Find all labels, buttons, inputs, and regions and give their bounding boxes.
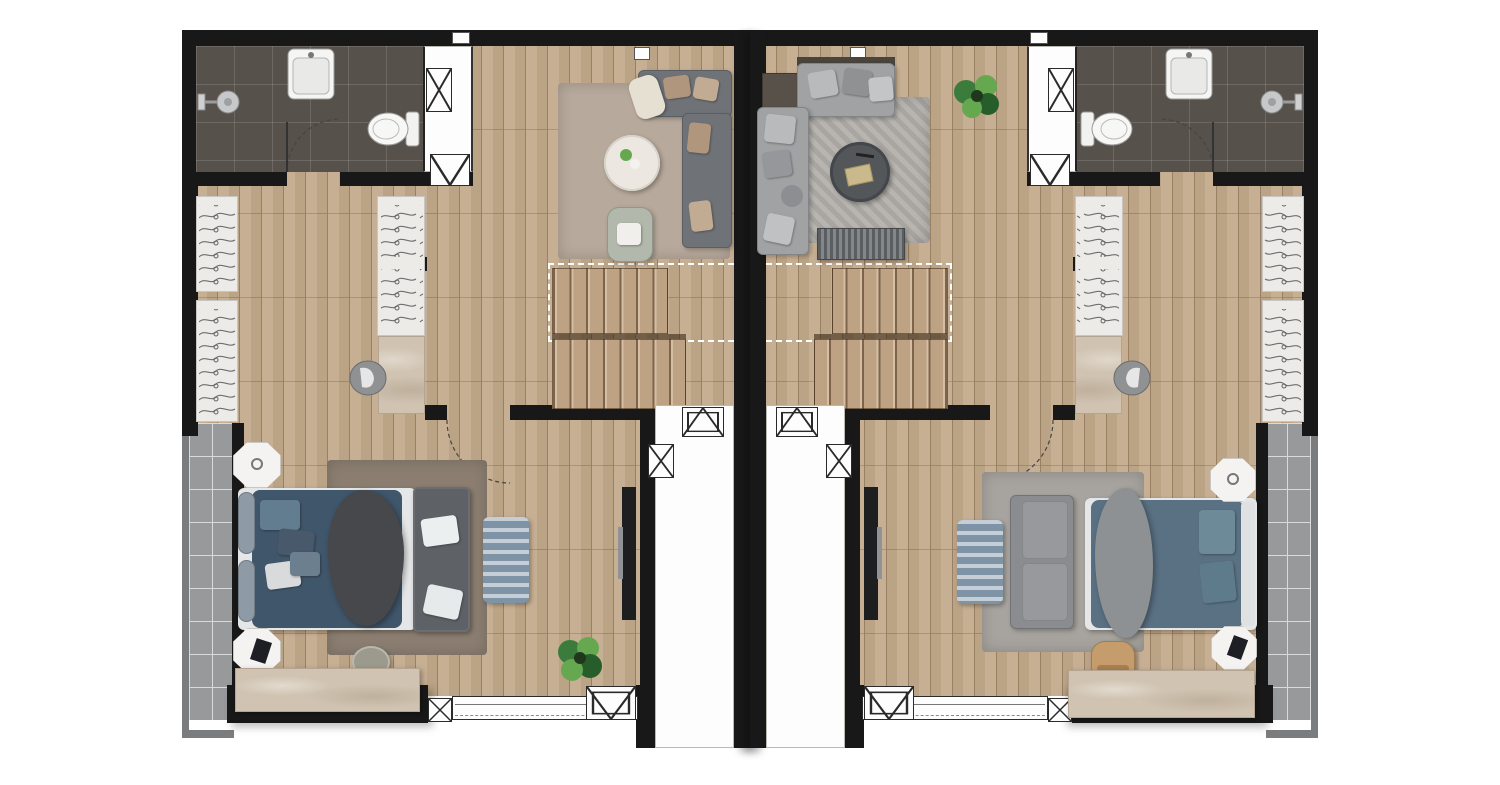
potted-plant [948, 68, 1004, 124]
bed-pillow [1199, 560, 1237, 603]
armchair [607, 207, 653, 262]
nightstand-top [233, 442, 281, 488]
table-remote [856, 153, 874, 158]
bench-pillow [422, 584, 463, 621]
bed-bench [413, 487, 470, 632]
potted-plant [550, 630, 608, 688]
sofa-cushion-round [781, 185, 803, 207]
sectional-top [797, 63, 895, 117]
sofa-pillow [686, 122, 711, 154]
unit-right [750, 30, 1318, 748]
nightstand-top [1210, 458, 1256, 502]
sofa-pillow [868, 76, 894, 102]
sofa-pillow [663, 74, 692, 99]
media-bench [817, 228, 905, 260]
sofa-pillow [764, 114, 797, 145]
floor-plan-canvas [0, 0, 1500, 785]
bed-pillow [260, 500, 300, 530]
sofa-pillow [762, 212, 795, 245]
writing-desk [1068, 670, 1255, 718]
unit-right-furniture [750, 30, 1318, 748]
sofa-cushion [1022, 501, 1068, 559]
coffee-table-marble [830, 142, 890, 202]
armchair-pillow [617, 223, 641, 245]
book [250, 638, 272, 664]
sofa-pillow [761, 149, 792, 179]
bed-pillow [1199, 510, 1235, 554]
blue-ottoman [483, 517, 529, 603]
headboard-cushion [238, 560, 255, 622]
blue-ottoman [957, 520, 1003, 604]
bed-sheet-fold [1241, 502, 1255, 626]
table-lamp [251, 458, 263, 470]
sectional-side [757, 107, 809, 255]
sofa-pillow [688, 200, 713, 232]
sofa-pillow [807, 69, 839, 99]
bed-pillow [290, 552, 320, 576]
coffee-table-white [604, 135, 660, 191]
l-sofa-side [682, 113, 732, 248]
book [1227, 635, 1248, 660]
headboard-cushion [238, 492, 255, 554]
bench-pillow [420, 515, 460, 548]
unit-left [182, 30, 750, 748]
nightstand-bottom [1211, 626, 1257, 670]
sofa-pillow [692, 76, 719, 102]
unit-left-furniture [182, 30, 750, 748]
table-tray-books [844, 163, 873, 186]
table-plant-sprig [620, 149, 632, 161]
stone-credenza [235, 668, 420, 712]
sofa-cushion [1022, 563, 1068, 621]
table-lamp [1227, 473, 1239, 485]
two-seat-sofa [1010, 495, 1074, 629]
table-flowers [630, 159, 640, 169]
